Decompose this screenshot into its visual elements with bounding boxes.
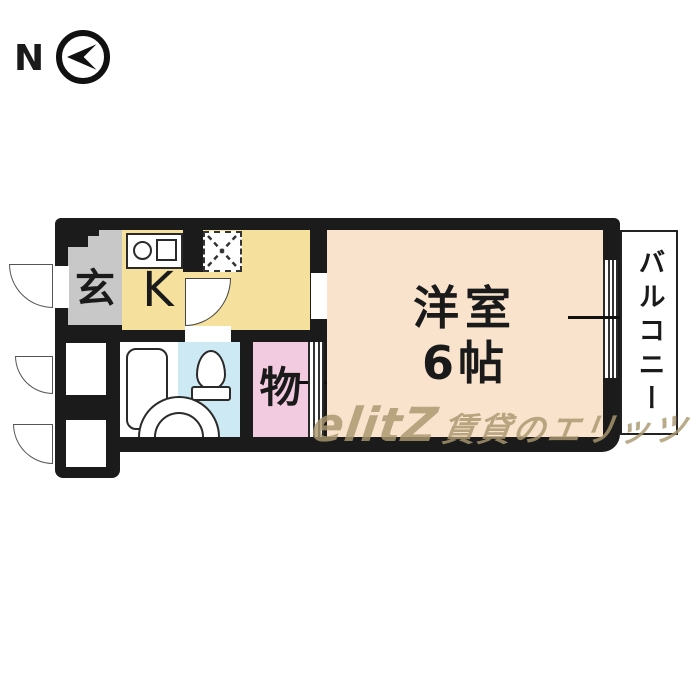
entrance-door-opening xyxy=(53,266,69,308)
kitchen-counter xyxy=(126,233,183,269)
entrance-step xyxy=(88,236,122,248)
refrigerator-space-icon xyxy=(203,231,242,272)
entrance-label: 玄 xyxy=(68,262,122,316)
compass-icon xyxy=(56,30,110,84)
compass: N xyxy=(12,30,112,90)
western-room-size: 6帖 xyxy=(360,338,570,388)
toilet-icon xyxy=(191,350,233,402)
stove-burner-icon xyxy=(133,241,152,260)
service-door-swing-icon-1 xyxy=(15,356,53,394)
service-door-swing-icon-2 xyxy=(13,424,53,464)
doorway-kitchen-room xyxy=(311,273,327,319)
watermark-logo: elitZ xyxy=(308,398,441,453)
window-tick xyxy=(568,316,625,319)
doorway-kitchen-bathroom xyxy=(185,326,231,342)
service-door-opening-1 xyxy=(66,343,106,395)
watermark: elitZ 賃貸のエリッツ xyxy=(308,398,692,453)
kitchen-label: K xyxy=(126,262,190,318)
sliding-window-icon xyxy=(603,260,618,378)
sink-icon xyxy=(156,239,177,261)
storage-label: 物 xyxy=(253,362,308,414)
watermark-text: 賃貸のエリッツ xyxy=(440,410,690,449)
compass-north-label: N xyxy=(14,38,44,79)
floor-plan-page: N 玄 K 物 xyxy=(0,0,700,700)
service-door-opening-2 xyxy=(66,420,106,467)
compass-arrow-icon xyxy=(67,41,99,73)
entrance-door-swing-icon xyxy=(9,264,53,308)
entrance-step-upper xyxy=(99,230,122,237)
western-room-name: 洋室 xyxy=(360,283,570,333)
